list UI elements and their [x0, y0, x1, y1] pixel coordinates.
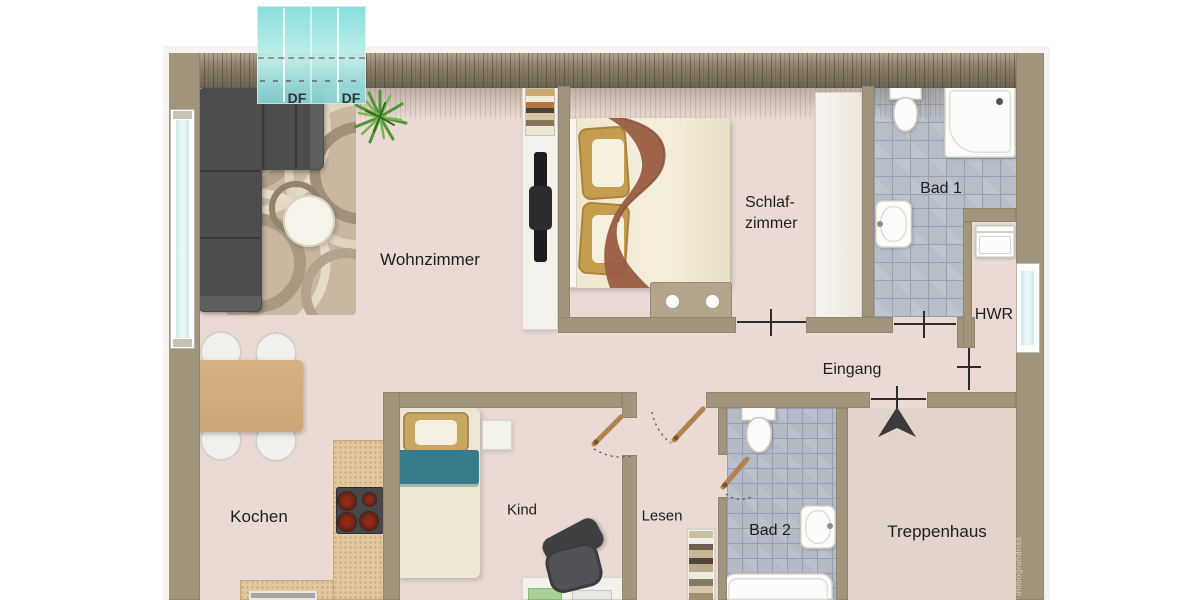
door-arc-kind: [594, 449, 632, 457]
door-leaf-lesen: [674, 409, 703, 440]
room-label-schlafzimmer-line1: Schlaf-: [745, 192, 797, 213]
door-arc-lesen: [652, 412, 671, 443]
room-label-schlafzimmer: Schlaf- zimmer: [745, 192, 797, 234]
door-symbols-overlay: [0, 0, 1200, 600]
room-label-bad2: Bad 2: [749, 522, 791, 540]
room-label-kochen: Kochen: [230, 507, 288, 527]
room-label-schlafzimmer-line2: zimmer: [745, 213, 797, 234]
room-label-bad1: Bad 1: [920, 180, 962, 198]
room-label-treppenhaus: Treppenhaus: [887, 522, 987, 542]
floor-plan: Wohnzimmer Schlaf- zimmer Bad 1 HWR Eing…: [0, 0, 1200, 600]
room-label-hwr: HWR: [975, 306, 1013, 324]
skylight-label-left: DF: [288, 90, 307, 106]
entrance-arrow-icon: [878, 407, 916, 437]
room-label-wohnzimmer: Wohnzimmer: [380, 250, 480, 270]
room-label-eingang: Eingang: [823, 361, 882, 379]
watermark: Immogrundriss: [1014, 520, 1023, 596]
door-leaf-bad2: [723, 459, 747, 487]
room-label-lesen: Lesen: [642, 508, 683, 525]
door-leaf-kind: [594, 417, 621, 444]
door-arc-bad2: [726, 494, 751, 499]
skylight-label-right: DF: [342, 90, 361, 106]
room-label-kind: Kind: [507, 502, 537, 519]
